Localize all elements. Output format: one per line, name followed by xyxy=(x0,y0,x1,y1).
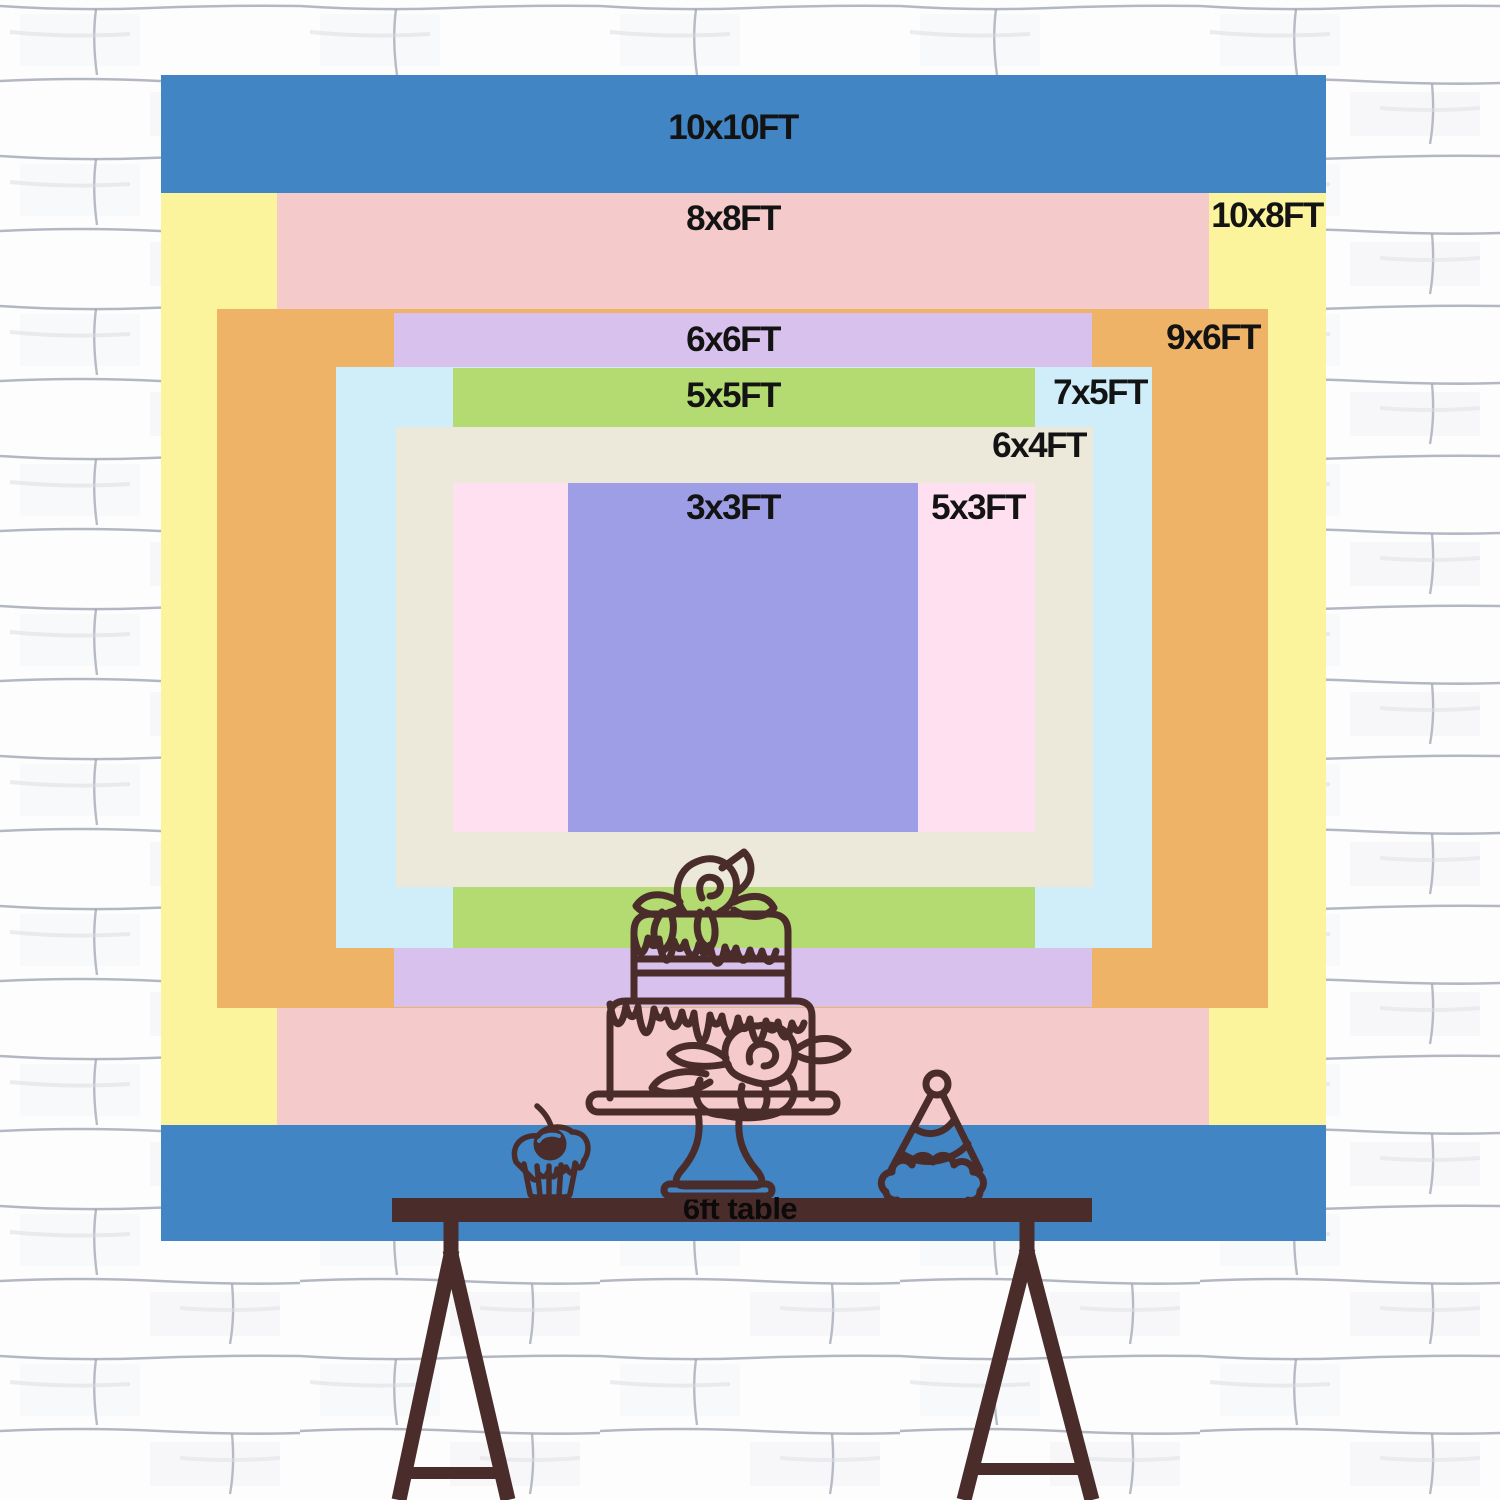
table-legs xyxy=(399,1200,1092,1500)
tiered-cake-icon xyxy=(589,852,848,1196)
cupcake-icon xyxy=(514,1106,588,1197)
party-hat-icon xyxy=(881,1073,983,1210)
backdrop-size-chart: 10x10FT10x8FT8x8FT9x6FT6x6FT7x5FT5x5FT6x… xyxy=(0,0,1500,1500)
line-art-layer xyxy=(0,0,1500,1500)
